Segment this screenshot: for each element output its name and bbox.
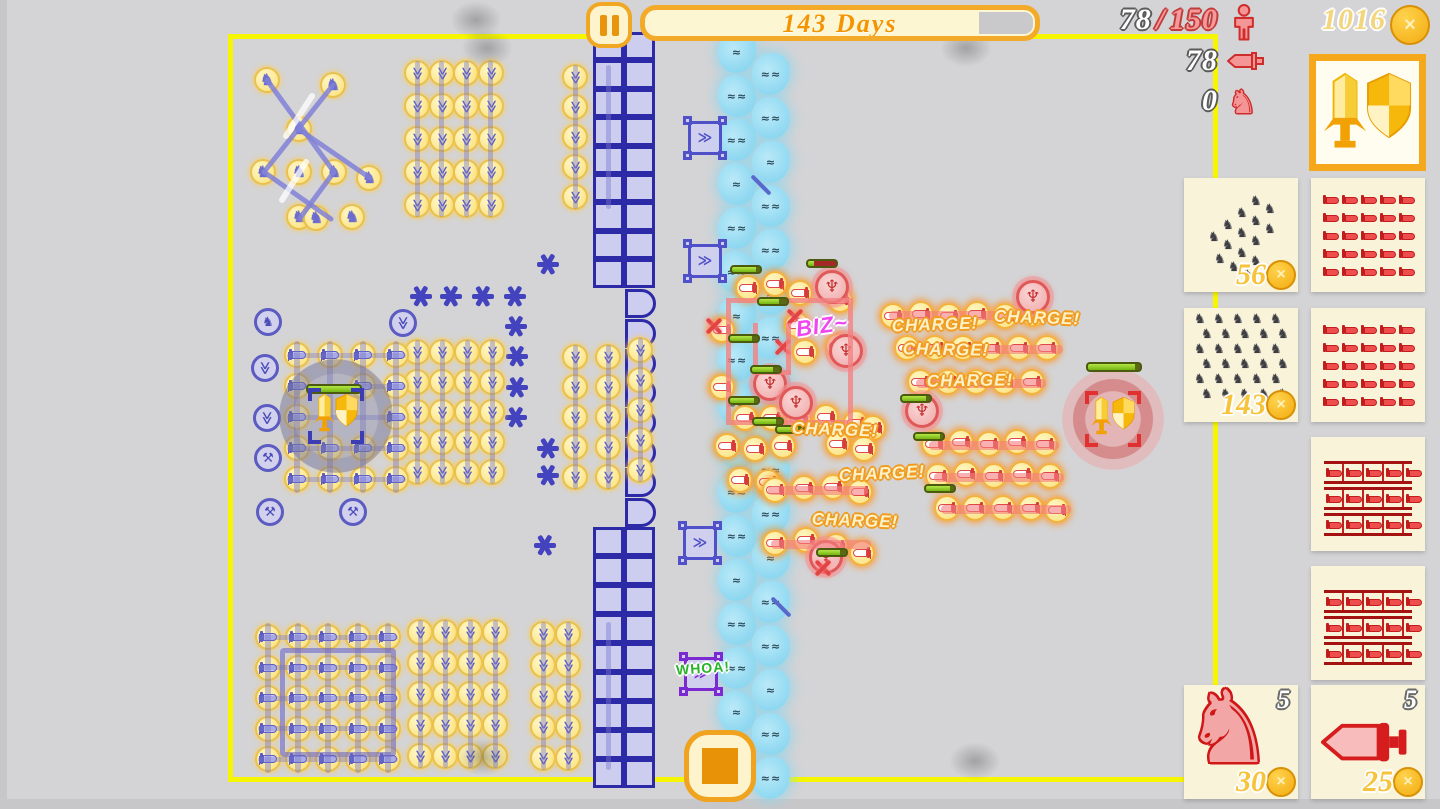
formation-line [929,441,1059,450]
blue-cavalry-unit[interactable]: ♞ [254,67,280,93]
horse-icon: ♞ [1270,312,1282,327]
sword-icon [1384,649,1402,658]
sword-icon [1384,494,1402,503]
cavalry-counter: 0 [1060,84,1218,118]
river-tile: ≈≈ [718,515,756,557]
sword-icon [1384,468,1402,477]
horse-icon: ♞ [1213,342,1225,357]
blue-cavalry-unit[interactable]: ♞ [250,159,276,185]
ballista-corner [683,151,692,160]
pause-button[interactable] [586,2,632,48]
ballista-corner [718,116,727,125]
unit-card-sword-single[interactable]: 525× [1311,685,1425,799]
wall-cell[interactable] [624,527,655,556]
wall-cell[interactable] [593,556,624,585]
charge-label: CHARGE! [838,462,925,486]
ballista-corner [679,687,688,696]
charge-label: CHARGE! [994,306,1081,329]
sword-icon [1340,397,1358,406]
horse-icon: ♞ [1250,214,1262,229]
horse-icon: ♞ [1239,357,1251,372]
pike-row [1324,461,1412,484]
population-separator: / [1156,3,1165,36]
sword-shield-emblem-icon [1091,396,1135,436]
sword-icon [1344,468,1362,477]
wall-cell[interactable] [624,672,655,701]
horse-icon: ♞ [1208,230,1220,245]
sword-icon [1321,397,1339,406]
sword-icon [1359,361,1377,370]
sword-icon [1404,468,1422,477]
red-infantry-unit[interactable] [762,271,788,297]
card-count: 25 [1363,765,1393,799]
caltrop[interactable] [506,345,528,367]
wall-top [593,32,655,288]
river-tile: ≈≈ [752,713,790,755]
health-bar [913,432,945,441]
sword-icon [1359,249,1377,258]
horse-icon: ♞ [1232,312,1244,327]
sword-icon [1364,468,1382,477]
pike-cell [1384,593,1404,610]
ballista-unit[interactable]: ≫ [688,121,722,155]
charge-label: CHARGE! [927,370,1014,392]
caltrop[interactable] [504,285,526,307]
card-count: 30 [1236,765,1266,799]
sword-icon [1321,195,1339,204]
sword-icon [1321,361,1339,370]
pike-cell [1364,490,1384,507]
melee-count: 78 [1186,44,1218,77]
formation-frame [280,648,396,757]
stop-icon [702,748,738,784]
trident-icon: ♆ [914,403,929,420]
sword-icon [745,444,765,454]
horse-icon: ♞ [256,164,270,180]
blue-cavalry-unit[interactable]: ♞ [339,204,365,230]
caltrop[interactable] [440,285,462,307]
sword-shield-emblem-icon [314,393,358,433]
caltrop[interactable] [505,315,527,337]
unit-card-swords-grid-b[interactable] [1311,308,1425,422]
horse-icon: ♞ [1213,312,1225,327]
ballista-unit[interactable]: ≫ [683,526,717,560]
sword-icon [1384,597,1402,606]
wall-cell[interactable] [624,556,655,585]
wall-cell[interactable] [593,527,624,556]
pike-cell [1344,516,1364,533]
wall-cell[interactable] [624,614,655,643]
horse-icon: ♞ [1251,342,1263,357]
cavalry-count: 0 [1202,84,1218,117]
health-bar [924,484,956,493]
sword-icon [1359,397,1377,406]
horse-icon: ♞ [1250,194,1262,209]
sword-icon [1364,520,1382,529]
ballista-corner [678,521,687,530]
sword-icon [1321,249,1339,258]
formation-line [287,477,406,482]
wall-cell[interactable] [624,643,655,672]
sword-icon [1324,623,1342,632]
card-count: 143 [1221,388,1266,422]
sword-icon [1344,649,1362,658]
pike-cell [1384,619,1404,636]
formation-line [415,340,420,484]
horse-icon: ♞ [1251,372,1263,387]
pike-cell [1384,490,1404,507]
sword-icon [1321,343,1339,352]
sword-icon [1340,343,1358,352]
horse-icon: ♞ [1277,357,1289,372]
health-bar [728,334,760,343]
horse-icon: ♞ [1194,312,1206,327]
ballista-corner [713,556,722,565]
formation-line [258,757,398,762]
river-tile: ≈ [718,559,756,601]
ghost-unit[interactable]: ⚒ [339,498,367,526]
ballista-unit[interactable]: ≫ [688,244,722,278]
pike-cell [1344,645,1364,662]
sword-icon [1364,597,1382,606]
wall-cell[interactable] [624,174,655,202]
sword-icon [1397,195,1415,204]
unit-card-pike-formation-b[interactable] [1311,566,1425,680]
caltrop[interactable] [472,285,494,307]
formation-line [465,340,470,484]
pike-cell [1324,645,1344,662]
sword-icon [1344,520,1362,529]
ghost-unit[interactable]: ≫ [389,309,417,337]
sword-icon [1321,325,1339,334]
sword-icon [1397,249,1415,258]
ballista-corner [679,652,688,661]
formation-line [768,486,868,495]
unit-card-cavalry-grid[interactable]: ♞♞♞♞♞♞♞♞♞♞♞♞♞♞♞♞♞♞♞♞♞♞♞♞♞♞♞♞♞♞143× [1184,308,1298,422]
river-tile: ≈≈ [718,75,756,117]
horse-icon: ♞ [1277,327,1289,342]
pike-cell [1344,619,1364,636]
sword-icon [1397,397,1415,406]
horse-icon: ♞ [327,164,341,180]
sword-icon [1404,494,1422,503]
river-tile: ≈≈ [752,97,790,139]
horse-icon: ♞ [1258,327,1270,342]
horse-icon: ♞ [1251,312,1263,327]
sword-icon [1384,623,1402,632]
sword-icon [1397,343,1415,352]
sword-icon [1340,249,1358,258]
blue-cavalry-unit[interactable]: ♞ [286,116,312,142]
ballista-corner [714,687,723,696]
formation-line [493,620,498,768]
trident-icon: ♆ [1025,289,1040,306]
river-tile: ≈≈ [752,581,790,623]
ghost-unit[interactable]: ⚒ [254,444,282,472]
sword-icon [1378,231,1396,240]
sword-icon [1404,597,1422,606]
wall-cell[interactable] [624,759,655,788]
horse-icon: ♞ [1264,222,1276,237]
sword-icon [1378,213,1396,222]
blue-cavalry-unit[interactable]: ♞ [320,72,346,98]
horse-icon: ♞ [1270,372,1282,387]
formation-line [439,61,444,217]
caltrop[interactable] [506,376,528,398]
sword-icon [1359,195,1377,204]
sword-icon [1378,267,1396,276]
caltrop[interactable] [505,406,527,428]
pike-cell [1404,619,1422,636]
sword-icon [1404,623,1422,632]
blue-cavalry-unit[interactable]: ♞ [303,205,329,231]
pike-cell [1404,464,1422,481]
river-tile: ≈≈ [718,603,756,645]
sword-icon [1359,343,1377,352]
ghost-unit[interactable]: ≫ [253,404,281,432]
river-tile: ≈≈ [752,53,790,95]
formation-line [941,505,1071,514]
person-icon [1230,4,1258,42]
wall-cell[interactable] [624,60,655,88]
formation-line [490,340,495,484]
sword-icon [1378,325,1396,334]
pike-cell [1324,593,1344,610]
sword-icon [1344,494,1362,503]
sword-icon [790,288,810,298]
smoke-mark [949,742,1001,780]
pike-cell [1324,464,1344,481]
sword-icon [1321,231,1339,240]
river-tile: ≈ [718,163,756,205]
game-screen: ≈≈≈≈≈≈≈≈≈≈≈≈≈≈≈≈≈≈≈≈≈≈≈≈≈≈≈≈≈≈≈≈≈≈≈≈≈≈≈≈… [0,0,1440,809]
ballista-corner [683,239,692,248]
sword-icon [828,439,848,449]
sword-icon [1359,325,1377,334]
sword-icon [1359,267,1377,276]
red-commander[interactable] [1091,396,1135,441]
wall-cell[interactable] [624,585,655,614]
formation-line [566,622,571,770]
caltrop[interactable] [410,285,432,307]
caltrop[interactable] [537,464,559,486]
sword-icon [1321,267,1339,276]
horse-icon: ♞ [260,72,274,88]
unit-card-cavalry-wedge[interactable]: ♞♞♞♞♞♞♞♞♞♞♞♞♞♞♞56× [1184,178,1298,292]
blue-cavalry-unit[interactable]: ♞ [286,159,312,185]
red-infantry-unit[interactable] [714,433,740,459]
sword-icon [1340,267,1358,276]
gold-counter: 1016 [1262,3,1386,37]
sword-icon [1359,379,1377,388]
sword-icon [1340,325,1358,334]
coin-icon: × [1266,767,1296,797]
pike-cell [1384,464,1404,481]
horse-icon: ♞ [1236,226,1248,241]
horse-icon: ♞ [1258,357,1270,372]
health-bar [750,365,782,374]
pike-row [1324,487,1412,510]
sword-icon [1404,520,1422,529]
horse-icon: ♞ [1239,327,1251,342]
horse-icon: ♞ [1222,238,1234,253]
formation-line [606,622,611,770]
pike-cell [1384,516,1404,533]
pike-row [1324,513,1412,536]
sword-icon [1226,52,1266,70]
caltrop[interactable] [534,534,556,556]
formation-line [443,620,448,768]
formation-line [638,338,643,482]
sword-icon [1324,597,1342,606]
bow-icon: ≫ [693,535,708,551]
red-infantry-unit[interactable] [742,436,768,462]
formation-line [934,473,1064,482]
pike-cell [1364,464,1384,481]
sword-icon [1321,379,1339,388]
day-counter-label: 143 Days [645,10,1035,36]
sword-icon [1378,361,1396,370]
charge-label: CHARGE! [812,509,899,532]
formation-line [258,635,398,640]
pike-row [1324,642,1412,665]
horse-icon: ♞ [362,170,376,186]
sword-icon [1397,325,1415,334]
formation-line [464,61,469,217]
gate-segment[interactable] [625,289,656,318]
pike-cell [1404,593,1422,610]
pike-cell [1364,645,1384,662]
horse-icon: ♞ [1194,342,1206,357]
red-infantry-unit[interactable] [727,467,753,493]
ballista-corner [683,274,692,283]
horse-icon: ♞ [1201,387,1213,402]
sword-icon [1340,213,1358,222]
river-tile: ≈ [718,691,756,733]
wall-cell[interactable] [624,730,655,759]
stop-button[interactable] [684,730,756,802]
horse-icon: ♞ [292,121,306,137]
blue-cavalry-unit[interactable]: ♞ [321,159,347,185]
ghost-unit[interactable]: ⚒ [256,498,284,526]
sword-icon [1359,231,1377,240]
sword-icon [1324,494,1342,503]
smoke-mark [457,738,509,776]
fort-wall [786,323,791,375]
horse-icon: ♞ [1213,372,1225,387]
pike-cell [1404,645,1422,662]
coin-icon: × [1266,260,1296,290]
pike-cell [1344,490,1364,507]
horse-icon: ♞ [1236,206,1248,221]
sword-grid [1321,320,1415,410]
formation-line [287,353,406,358]
horse-icon: ♞ [326,77,340,93]
pause-icon [600,15,607,36]
caltrop[interactable] [537,437,559,459]
wall-cell[interactable] [624,202,655,230]
pike-cell [1324,516,1344,533]
wall-cell[interactable] [593,259,624,287]
blue-cavalry-unit[interactable]: ♞ [356,165,382,191]
horse-icon: ♞ [1220,357,1232,372]
horse-icon: ♞ [1228,86,1257,118]
gate-segment[interactable] [625,498,656,527]
wall-cell[interactable] [593,231,624,259]
pike-cell [1344,464,1364,481]
caltrop[interactable] [537,253,559,275]
wall-cell[interactable] [624,146,655,174]
pike-cell [1324,490,1344,507]
ghost-unit[interactable]: ≫ [251,354,279,382]
sword-icon [765,279,785,289]
card-count: 56 [1236,258,1266,292]
selected-unit-card[interactable] [1309,54,1426,171]
horse-icon: ♞ [1222,218,1234,233]
wall-bottom [593,527,655,788]
unit-card-pike-formation-a[interactable] [1311,437,1425,551]
pike-cell [1344,593,1364,610]
horse-icon: ♞ [1270,342,1282,357]
charge-label: CHARGE! [892,313,979,336]
wall-cell[interactable] [624,259,655,287]
sword-icon [1364,494,1382,503]
formation-line [488,61,493,217]
wall-cell[interactable] [624,89,655,117]
unit-card-cavalry-single[interactable]: ♞530× [1184,685,1298,799]
horse-icon: ♞ [1232,342,1244,357]
coin-icon: × [1266,390,1296,420]
sword-icon [1324,649,1342,658]
health-bar [757,297,789,306]
bow-icon: ≫ [698,253,713,269]
sword-icon [1324,468,1342,477]
wall-cell[interactable] [624,117,655,145]
horse-icon: ♞ [1214,252,1226,267]
population-max: 150 [1170,3,1218,36]
sword-icon [1378,379,1396,388]
health-bar [1086,362,1142,372]
coin-icon: × [1390,5,1430,45]
river-tile: ≈≈ [752,757,790,799]
horse-icon: ♞ [1201,357,1213,372]
ghost-unit[interactable]: ♞ [254,308,282,336]
health-bar [816,548,848,557]
ballista-corner [718,151,727,160]
health-bar [900,394,932,403]
ballista-corner [713,521,722,530]
unit-card-swords-grid-a[interactable] [1311,178,1425,292]
health-bar [730,265,762,274]
sword-icon [1378,343,1396,352]
horse-icon: ♞ [1194,372,1206,387]
wall-cell[interactable] [593,585,624,614]
wall-cell[interactable] [624,231,655,259]
formation-line [418,620,423,768]
card-badge: 5 [1277,685,1290,715]
blue-commander[interactable] [314,393,358,438]
pike-cell [1364,593,1384,610]
sword-icon [1378,397,1396,406]
sword-icon [1340,379,1358,388]
sword-icon [773,441,793,451]
river-tile: ≈≈ [752,625,790,667]
sword-icon [1378,249,1396,258]
gold-amount: 1016 [1322,3,1386,36]
health-bar [728,396,760,405]
pause-icon [612,15,619,36]
wall-cell[interactable] [624,701,655,730]
